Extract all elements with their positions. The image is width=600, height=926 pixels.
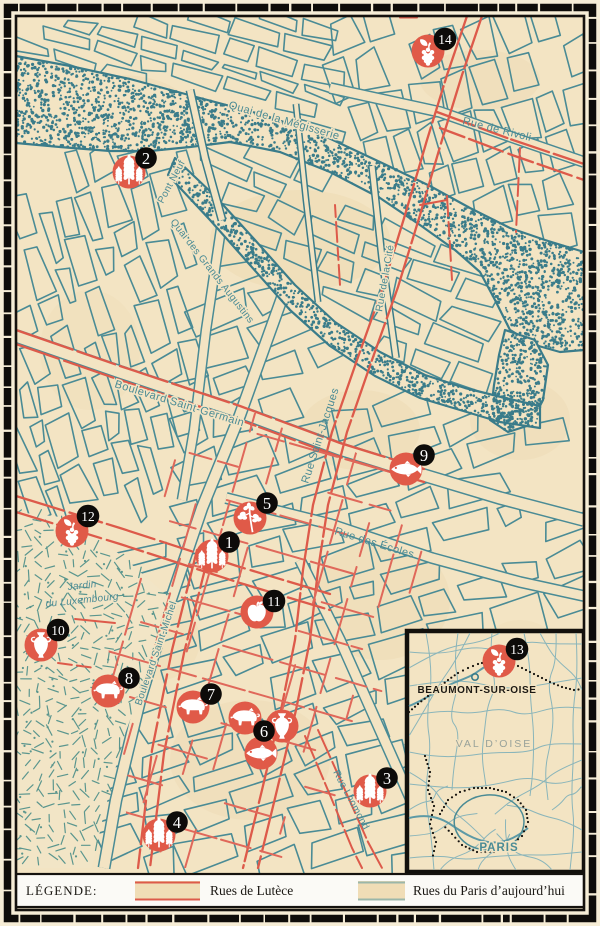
svg-text:4: 4 [173,813,181,832]
svg-text:6: 6 [260,722,268,741]
svg-text:Rues du Paris d’aujourd’hui: Rues du Paris d’aujourd’hui [413,883,565,898]
svg-text:LÉGENDE:: LÉGENDE: [26,883,98,898]
svg-text:PARIS: PARIS [479,842,518,854]
svg-text:Rues de Lutèce: Rues de Lutèce [210,883,293,898]
svg-text:11: 11 [268,594,281,609]
svg-text:BEAUMONT-SUR-OISE: BEAUMONT-SUR-OISE [417,685,536,696]
svg-text:13: 13 [510,642,524,657]
svg-text:VAL D’OISE: VAL D’OISE [456,738,533,750]
svg-text:3: 3 [383,769,391,788]
svg-text:2: 2 [142,149,150,168]
svg-text:12: 12 [81,509,95,524]
svg-text:1: 1 [225,533,233,552]
svg-text:8: 8 [125,669,133,688]
svg-text:7: 7 [207,685,215,704]
svg-text:5: 5 [263,494,271,513]
svg-text:9: 9 [420,446,428,465]
svg-text:14: 14 [438,32,452,47]
svg-text:10: 10 [51,623,65,638]
